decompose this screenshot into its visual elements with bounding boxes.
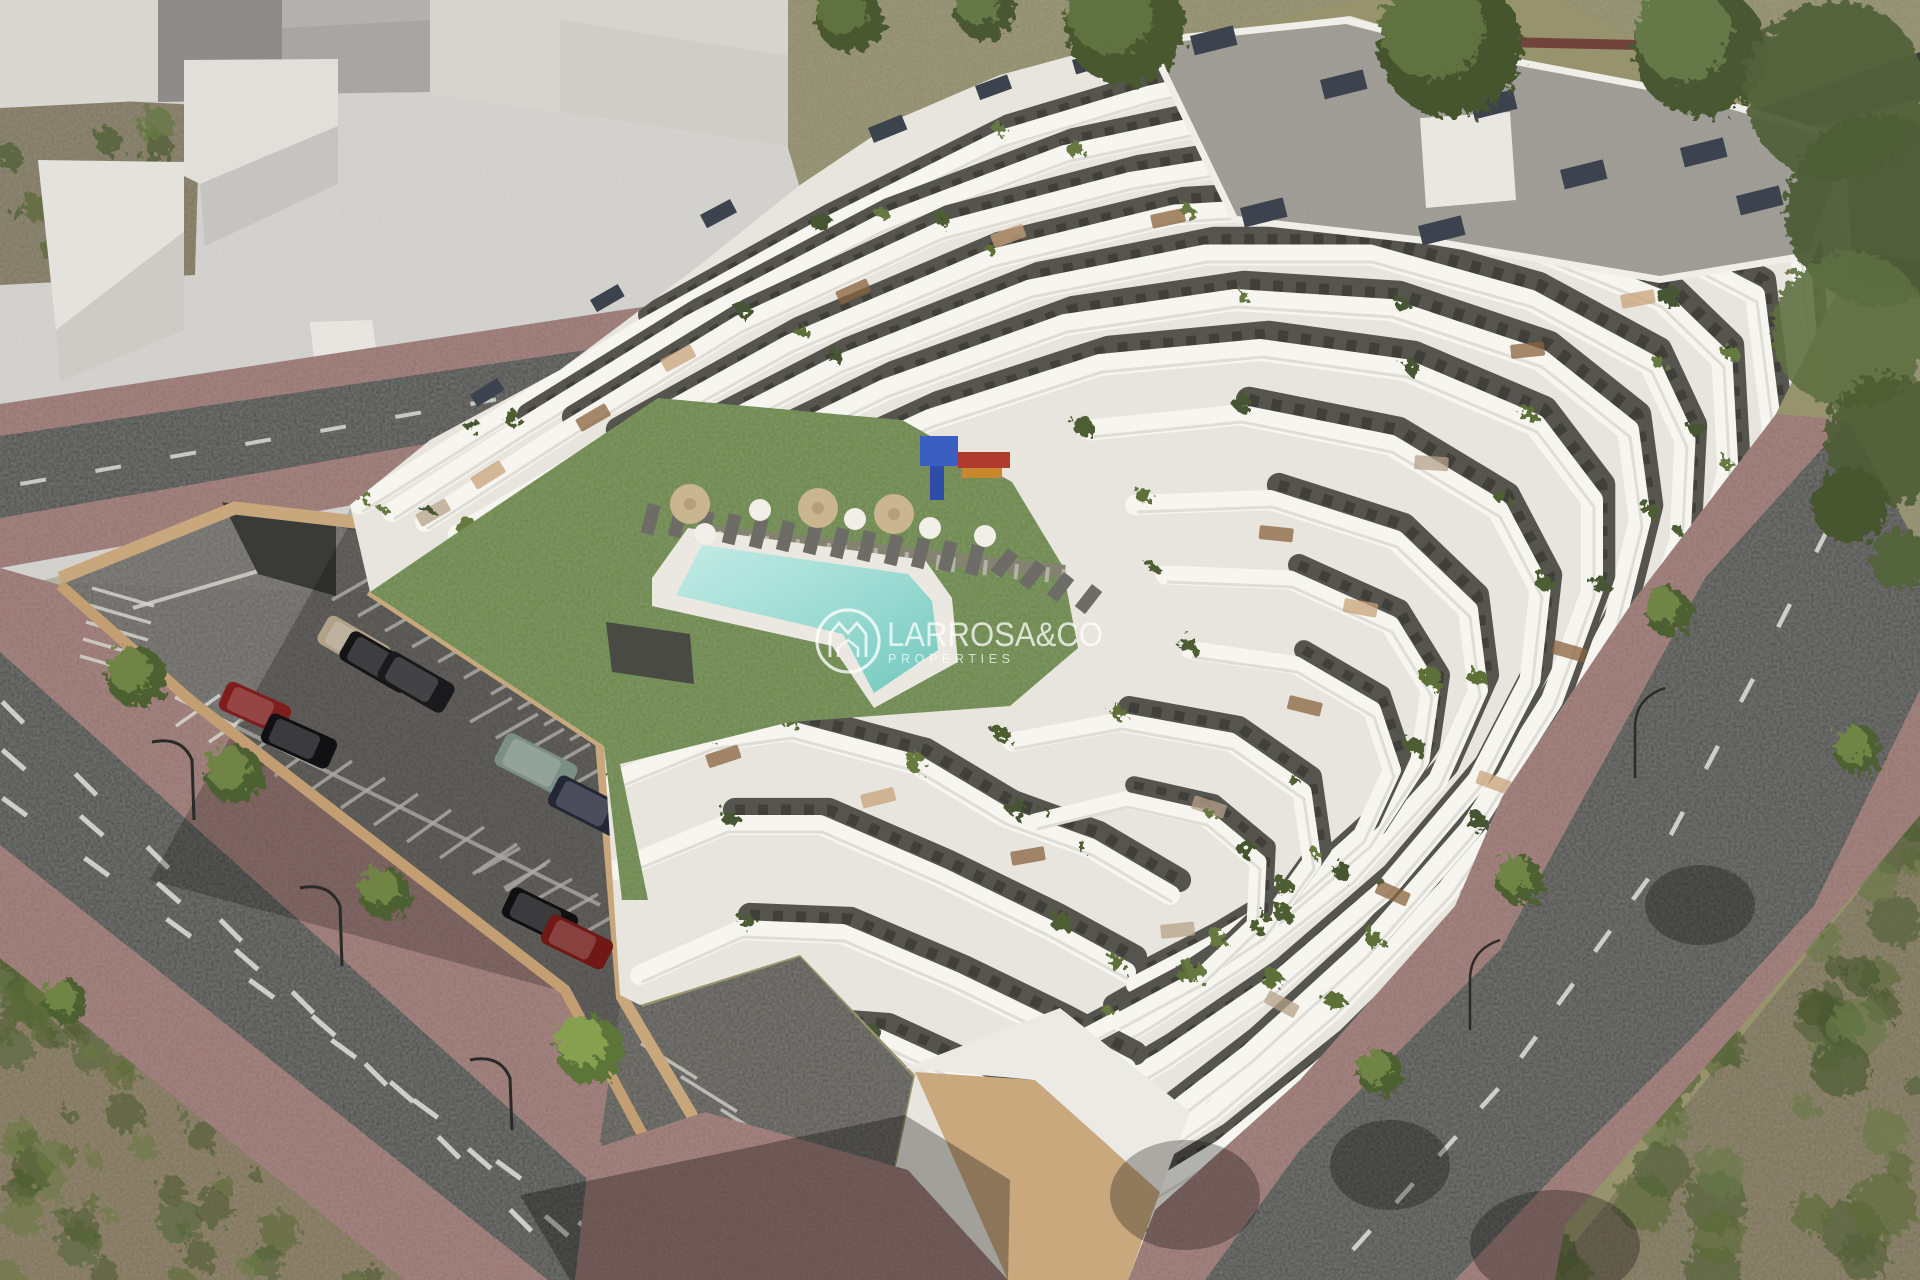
svg-text:PROPERTIES: PROPERTIES bbox=[888, 652, 1010, 666]
svg-text:LARROSA&CO: LARROSA&CO bbox=[887, 616, 1103, 654]
